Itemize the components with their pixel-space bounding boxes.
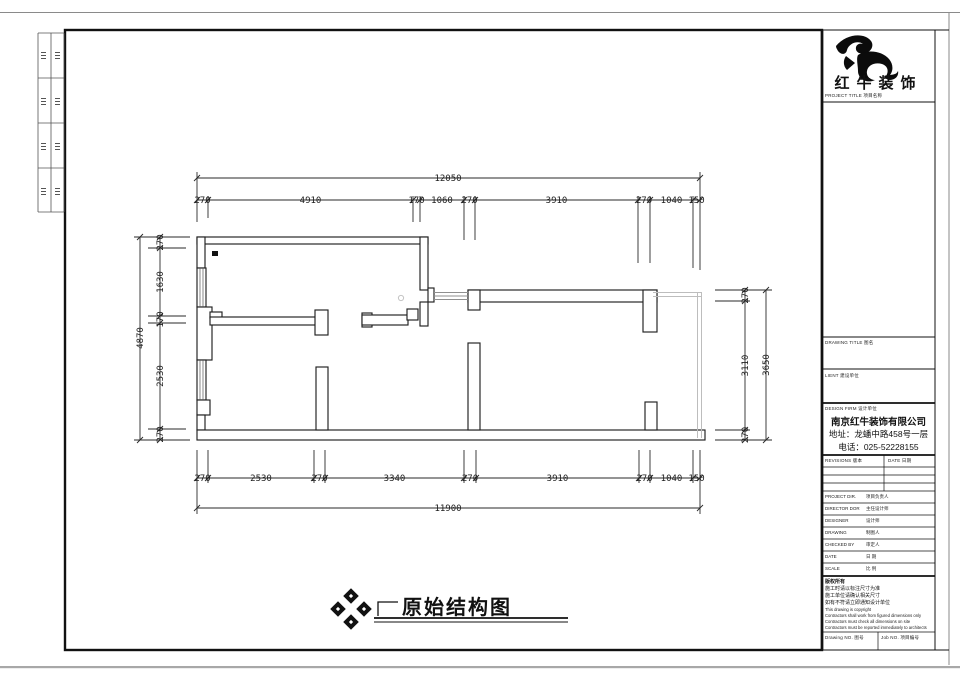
staff-role-en: DIRECTOR DOR [825,506,866,512]
fold-strip-mark [55,96,60,105]
dim-label: 270 [156,426,166,442]
staff-role-en: PROJECT DIR. [825,494,866,500]
entry-window-lines [434,293,468,300]
dim-label: 270 [156,234,166,250]
revisions-label: REVISIONS 版本 [825,458,862,464]
project-title-label: PROJECT TITLE 项目名称 [825,93,882,99]
dim-label: 170 [408,196,424,206]
dim-label: 270 [311,474,327,484]
company-phone: 电话：025-52228155 [822,441,935,453]
cad-sheet: 12050 270 4910 170 1060 270 3910 270 104… [0,0,960,680]
fold-strip-mark [41,141,46,150]
balcony-glazing-lines [653,292,702,438]
copyright-line: Contractors must check all dimensions on… [825,619,910,624]
staff-role-en: DESIGNER [825,518,866,524]
staff-role-zh: 项目负责人 [866,494,889,500]
dim-label: 3910 [546,196,568,206]
dimension-labels: 12050 270 4910 170 1060 270 3910 270 104… [136,174,772,514]
fold-strip-mark [55,141,60,150]
fold-strip-mark [41,50,46,59]
staff-role-en: DRAWING [825,530,866,536]
floor-plan-walls [197,237,705,440]
staff-role-zh: 日 期 [866,554,876,560]
dim-label: 12050 [434,174,461,184]
copyright-line: This drawing is copyright [825,607,871,612]
beam-mark [212,251,218,256]
staff-row: DRAWING 制图人 [825,530,931,536]
dim-label: 3110 [741,355,751,377]
sheet-bottom-edge [0,666,960,668]
dim-label: 4870 [136,327,146,349]
staff-role-en: SCALE [825,566,866,572]
staff-row: PROJECT DIR. 项目负责人 [825,494,931,500]
client-label: LIENT 建设单位 [825,373,859,379]
fold-strip-mark [41,96,46,105]
staff-role-zh: 设计师 [866,518,880,524]
dim-label: 11900 [434,504,461,514]
staff-role-zh: 比 例 [866,566,876,572]
copyright-line: 如有不符请立即通知设计单位 [825,599,890,606]
staff-role-en: DATE [825,554,866,560]
compass-icon [330,588,372,630]
dim-label: 270 [194,196,210,206]
dim-label: 2530 [250,474,272,484]
dim-label: 150 [688,474,704,484]
copyright-line: Contractors must be reported immediately… [825,625,927,630]
logo-wordmark: 红牛装饰 [822,72,935,93]
staff-role-zh: 审定人 [866,542,880,548]
fold-strip-mark [41,186,46,195]
job-no-label: Job NO. 项目编号 [881,635,919,641]
dim-label: 3650 [762,354,772,376]
fold-strip-mark [55,50,60,59]
dim-label: 270 [461,196,477,206]
copyright-line: 施工单位请确认相关尺寸 [825,592,880,599]
staff-row: SCALE 比 例 [825,566,931,572]
design-firm-label: DESIGN FIRM 设计单位 [825,406,877,412]
dim-label: 2530 [156,365,166,387]
drawing-title-label: DRAWING TITLE 图名 [825,340,873,346]
drawing-no-label: Drawing NO. 图号 [825,635,864,641]
drawing-area-border [65,30,822,650]
date-header-label: DATE 日期 [888,458,911,464]
dimension-lines [134,172,772,514]
pipe-symbol [398,295,403,300]
staff-role-zh: 制图人 [866,530,880,536]
staff-row: DIRECTOR DOR 主任设计师 [825,506,931,512]
dim-label: 4910 [300,196,322,206]
staff-row: DATE 日 期 [825,554,931,560]
dim-label: 170 [156,311,166,327]
copyright-line: 施工时请以标注尺寸为准 [825,585,880,592]
staff-row: CHECKED BY 审定人 [825,542,931,548]
dim-label: 1040 [661,196,683,206]
dim-label: 270 [636,474,652,484]
dim-label: 3910 [547,474,569,484]
dim-label: 270 [741,287,751,303]
dim-label: 3340 [384,474,406,484]
drawing-linework: 12050 270 4910 170 1060 270 3910 270 104… [0,0,960,680]
dim-label: 270 [636,196,652,206]
dim-label: 270 [462,474,478,484]
dim-label: 270 [194,474,210,484]
copyright-line: Contractors shall work from figured dime… [825,613,921,618]
drawing-title: 原始结构图 [402,591,512,620]
fold-strip-mark [55,186,60,195]
staff-row: DESIGNER 设计师 [825,518,931,524]
copyright-line: 版权所有 [825,578,845,585]
staff-role-en: CHECKED BY [825,542,866,548]
dim-label: 1630 [156,271,166,293]
dim-label: 150 [688,196,704,206]
company-name: 南京红牛装饰有限公司 [822,414,935,428]
dim-label: 270 [741,427,751,443]
dim-label: 1060 [431,196,453,206]
staff-role-zh: 主任设计师 [866,506,889,512]
dim-label: 1040 [661,474,683,484]
company-address: 地址：龙蟠中路458号一层 [822,428,935,440]
